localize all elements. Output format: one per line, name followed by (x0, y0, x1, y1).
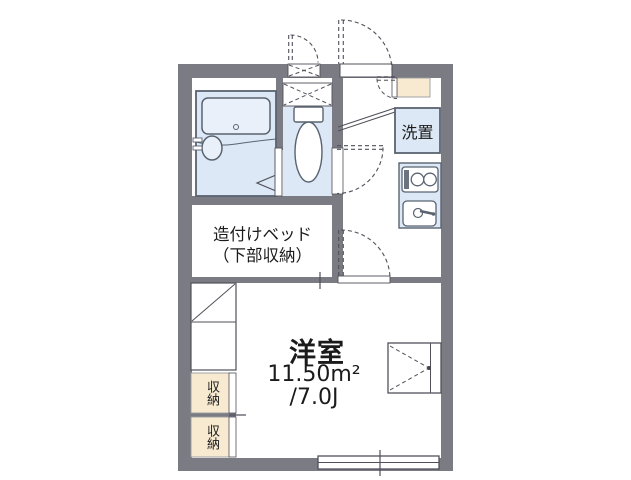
entry-door-leaf (340, 64, 392, 77)
toilet-tank (294, 107, 323, 122)
floor-plan: 造付けベッド （下部収納） 洋室 11.50m² /7.0J 洗置 収納 収納 (0, 0, 631, 480)
meter-door-swing-arc (291, 35, 319, 63)
bath-tap-icon (193, 138, 202, 142)
toilet-bowl (295, 122, 322, 182)
storage-upper-label: 収納 (191, 373, 230, 413)
bathtub (202, 98, 270, 134)
room-door-swing-arc (341, 230, 390, 279)
bath-sink (202, 136, 222, 160)
toilet-door-swing-arc (337, 148, 383, 194)
toilet-door-open-position (337, 146, 383, 150)
wall-left (178, 64, 192, 471)
stove-burner-icon (411, 173, 424, 186)
wall-bed-bottom (192, 277, 441, 283)
meter-door-open-position (289, 35, 293, 63)
built-in-bed-label-line2: （下部収納） (192, 242, 333, 266)
stove-grill-icon (404, 170, 409, 189)
washer-place-label: 洗置 (395, 108, 440, 153)
faucet-knob-icon (432, 212, 436, 216)
wall-bath-toilet (276, 78, 283, 150)
shoe-cabinet (397, 78, 430, 97)
storage-lower-label: 収納 (191, 417, 230, 457)
wall-corridor-lower (332, 194, 343, 283)
wall-right (441, 64, 453, 471)
entry-door-swing-arc (341, 20, 392, 71)
storage-lower-door-leaf (229, 417, 236, 457)
wall-corridor-upper (332, 77, 343, 148)
shoe-cabinet-door-leaf (392, 78, 397, 97)
bathroom-unit (193, 91, 282, 196)
entry-door-open-position (339, 20, 344, 64)
faucet-icon (414, 209, 423, 218)
bath-tap-icon (193, 146, 202, 150)
room-door (338, 230, 390, 283)
wall-under-bath (192, 196, 343, 205)
room-door-leaf (338, 276, 390, 283)
bath-door-leaf (275, 148, 282, 196)
stove-burner-icon (424, 173, 437, 186)
toilet-door-leaf (332, 148, 343, 194)
genkan-step-line (338, 108, 395, 131)
